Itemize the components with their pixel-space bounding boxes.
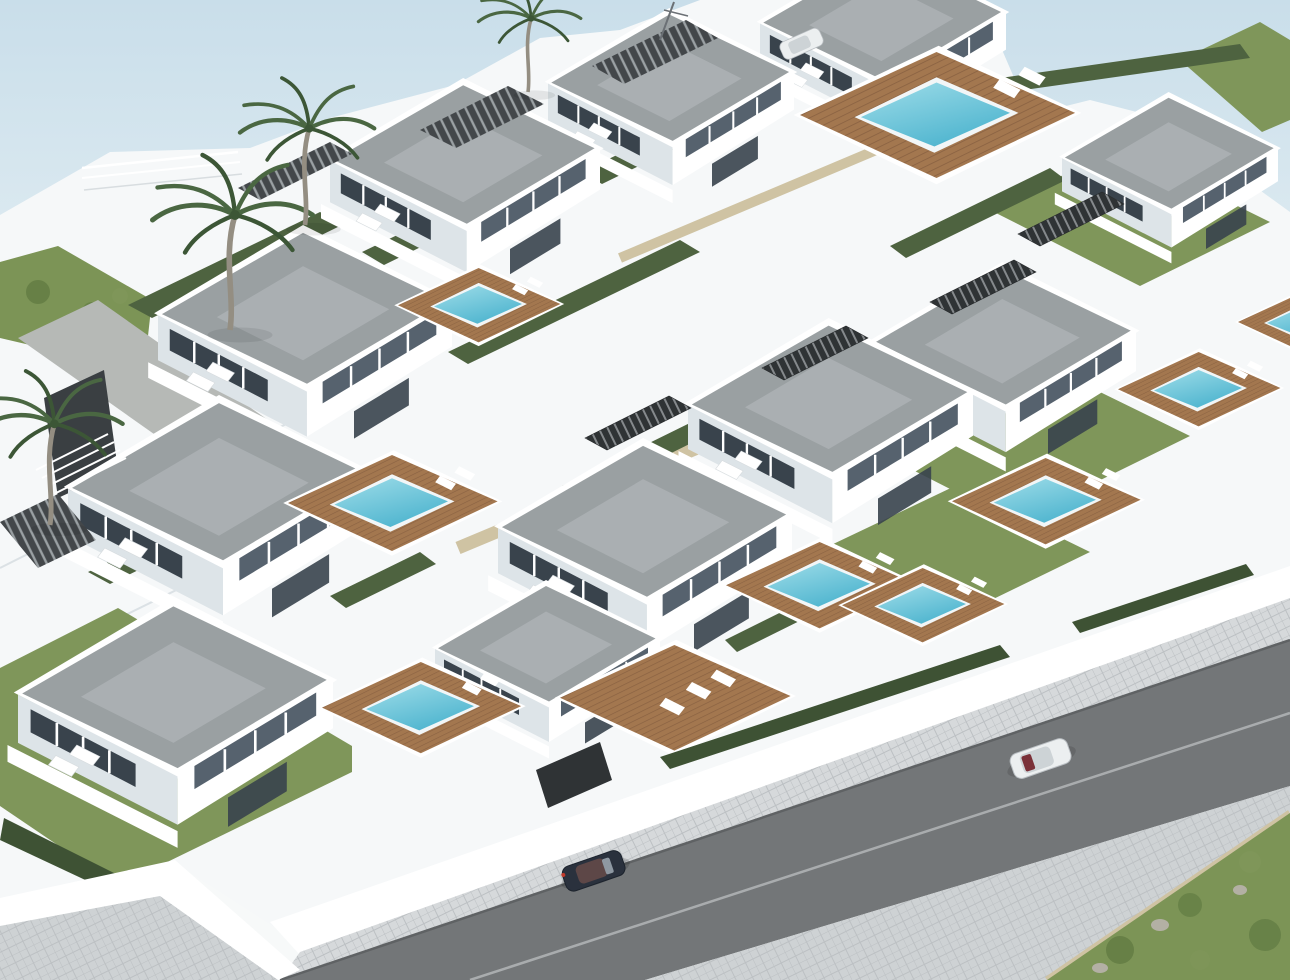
render-stage: Aerial 3D render of a terraced villa dev… bbox=[0, 0, 1290, 980]
scrub-tuft bbox=[26, 280, 50, 304]
scrub-tuft bbox=[112, 288, 128, 304]
